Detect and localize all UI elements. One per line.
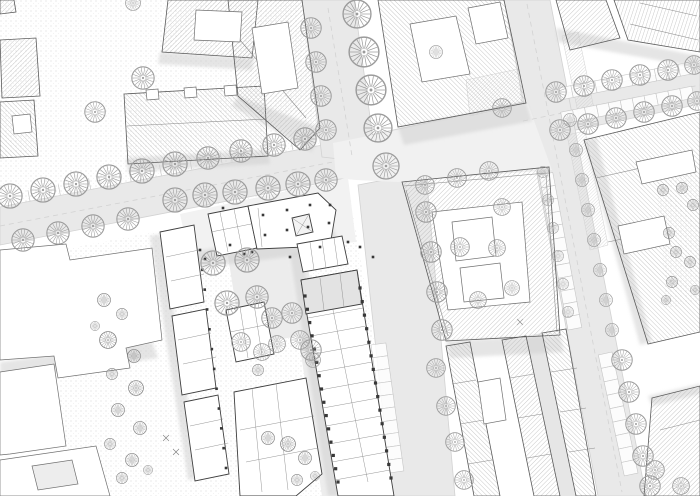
column-marker [361,300,364,303]
street-tree [619,382,639,402]
block-southeast-corner [644,386,700,496]
column-marker [385,449,388,452]
parking-stall [378,394,395,409]
column-marker [347,241,350,244]
column-marker [336,480,339,483]
column-marker [327,427,330,430]
column-marker [225,467,228,470]
column-marker [320,387,323,390]
column-marker [319,246,322,249]
block-west-edge-a [0,38,40,98]
column-marker [306,308,309,311]
column-marker [309,204,312,207]
column-marker [308,321,311,324]
street-tree [446,433,465,452]
column-marker [376,395,379,398]
column-marker [213,368,216,371]
column-marker [365,327,368,330]
column-marker [383,436,386,439]
site-plan [0,0,700,496]
column-marker [229,244,232,247]
column-marker [211,348,214,351]
dormer-3 [224,85,237,96]
column-marker [222,207,225,210]
parking-stall [371,343,388,358]
column-marker [329,441,332,444]
block-corner-nw [0,0,16,14]
column-marker [307,226,310,229]
column-marker [289,256,292,259]
column-marker [369,354,372,357]
column-marker [199,249,202,252]
parking-stall [373,356,390,371]
column-marker [222,447,225,450]
column-marker [325,414,328,417]
column-marker [318,374,321,377]
street-tree [349,37,379,67]
parking-stall [566,315,582,330]
parking-stall [376,381,393,396]
column-marker [218,407,221,410]
site-plan-svg [0,0,700,496]
column-marker [203,288,206,291]
street-tree [612,350,632,370]
column-marker [358,286,361,289]
column-marker [286,229,289,232]
column-marker [363,314,366,317]
column-marker [215,387,218,390]
column-marker [208,328,211,331]
column-marker [372,368,375,371]
column-marker [387,463,390,466]
column-marker [378,409,381,412]
column-marker [372,256,375,259]
column-marker [264,234,267,237]
parking-stall [382,420,399,435]
parking-stall [380,407,397,422]
column-marker [381,422,384,425]
dormer-1 [146,89,159,100]
column-marker [334,467,337,470]
column-marker [389,476,392,479]
column-marker [206,308,209,311]
dormer-2 [184,87,197,98]
street-tree [455,471,474,490]
column-marker [286,209,289,212]
existing-building-west-2 [0,364,66,455]
south-cluster [234,378,322,496]
column-marker [310,334,313,337]
column-marker [322,401,325,404]
column-marker [303,294,306,297]
street-tree [356,75,386,105]
column-marker [328,222,331,225]
column-marker [220,427,223,430]
column-marker [367,341,370,344]
street-tree [626,414,646,434]
courtyard-infill-2 [460,263,504,302]
column-marker [329,204,332,207]
column-marker [359,246,362,249]
small-square-building [12,114,32,134]
column-marker [262,214,265,217]
column-marker [374,381,377,384]
block-north-a-courtyard [194,10,242,42]
column-marker [332,454,335,457]
parking-stall [375,369,392,384]
street-tree [633,446,653,466]
